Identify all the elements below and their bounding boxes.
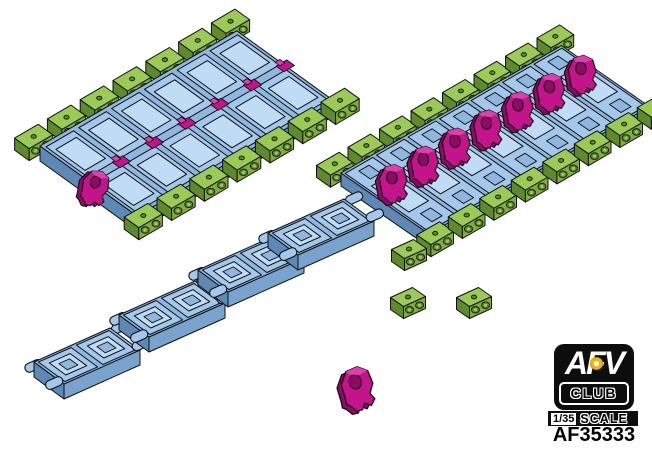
pin-hole-center xyxy=(286,145,289,148)
pin-hole-center xyxy=(275,152,278,155)
bolt-hole xyxy=(364,144,369,148)
loose-guide-horn xyxy=(334,364,379,416)
bolt-hole xyxy=(622,122,627,126)
pin-hole-center xyxy=(561,173,564,176)
bolt-hole xyxy=(406,247,411,251)
pin-hole-center xyxy=(540,185,543,188)
track-pin xyxy=(365,208,385,224)
pin-hole-center xyxy=(419,256,422,259)
pin-hole-center xyxy=(335,176,338,179)
bolt-hole xyxy=(433,231,438,235)
bolt-hole xyxy=(338,98,343,102)
bolt-hole xyxy=(174,194,179,198)
pin-hole-center xyxy=(635,130,638,133)
bolt-hole xyxy=(64,115,69,119)
pin-hole-center xyxy=(176,209,179,212)
track-parts-illustration xyxy=(0,0,652,461)
pin-hole-center xyxy=(308,132,311,135)
pin-hole-center xyxy=(477,221,480,224)
pin-hole-center xyxy=(603,149,606,152)
pin-hole-center xyxy=(435,246,438,249)
pin-hole-center xyxy=(566,43,569,46)
pin-hole-center xyxy=(187,203,190,206)
pin-hole-center xyxy=(446,240,449,243)
bolt-hole xyxy=(471,295,476,299)
pin-hole-center xyxy=(467,227,470,230)
pin-hole-center xyxy=(624,136,627,139)
bolt-hole xyxy=(395,125,400,129)
bolt-hole xyxy=(228,19,233,23)
pin-hole-center xyxy=(498,209,501,212)
bolt-hole xyxy=(31,135,36,139)
assembled-track-run-outer xyxy=(15,9,360,240)
loose-end-connector-3 xyxy=(457,288,492,319)
bolt-hole xyxy=(521,53,526,57)
bolt-hole xyxy=(332,162,337,166)
bolt-hole xyxy=(97,96,102,100)
loose-end-connector-2 xyxy=(391,288,426,319)
pin-hole-center xyxy=(530,191,533,194)
pin-hole-center xyxy=(154,222,157,225)
bolt-hole xyxy=(427,107,432,111)
pin-hole-center xyxy=(144,228,147,231)
pin-hole-center xyxy=(351,107,354,110)
bolt-hole xyxy=(490,71,495,75)
bolt-hole xyxy=(464,213,469,217)
bolt-hole xyxy=(305,118,310,122)
pin-hole-center xyxy=(253,164,256,167)
pin-hole-center xyxy=(484,304,487,307)
pin-hole-center xyxy=(242,171,245,174)
bolt-hole xyxy=(141,214,146,218)
pin-hole-center xyxy=(593,155,596,158)
pin-hole-center xyxy=(418,304,421,307)
pin-hole-center xyxy=(34,149,37,152)
pin-hole-center xyxy=(220,184,223,187)
pin-hole-center xyxy=(572,167,575,170)
bolt-hole xyxy=(527,177,532,181)
pin-hole-center xyxy=(409,260,412,263)
pin-hole-center xyxy=(408,308,411,311)
bolt-hole xyxy=(590,140,595,144)
pin-hole-center xyxy=(340,113,343,116)
bolt-hole xyxy=(239,156,244,160)
bolt-hole xyxy=(206,175,211,179)
pin-hole-center xyxy=(474,308,477,311)
bolt-hole xyxy=(272,137,277,141)
bolt-hole xyxy=(458,89,463,93)
pin-hole-center xyxy=(209,190,212,193)
bolt-hole xyxy=(129,77,134,81)
bolt-hole xyxy=(162,58,167,62)
box-side-panel: AFV CLUB 1/35 SCALE AF35333 xyxy=(0,0,652,461)
bolt-hole xyxy=(559,159,564,163)
pin-hole-center xyxy=(509,203,512,206)
bolt-hole xyxy=(553,34,558,38)
bolt-hole xyxy=(496,195,501,199)
pin-hole-center xyxy=(242,28,245,31)
bolt-hole xyxy=(195,39,200,43)
bolt-hole xyxy=(405,295,410,299)
pin-hole-center xyxy=(318,126,321,129)
